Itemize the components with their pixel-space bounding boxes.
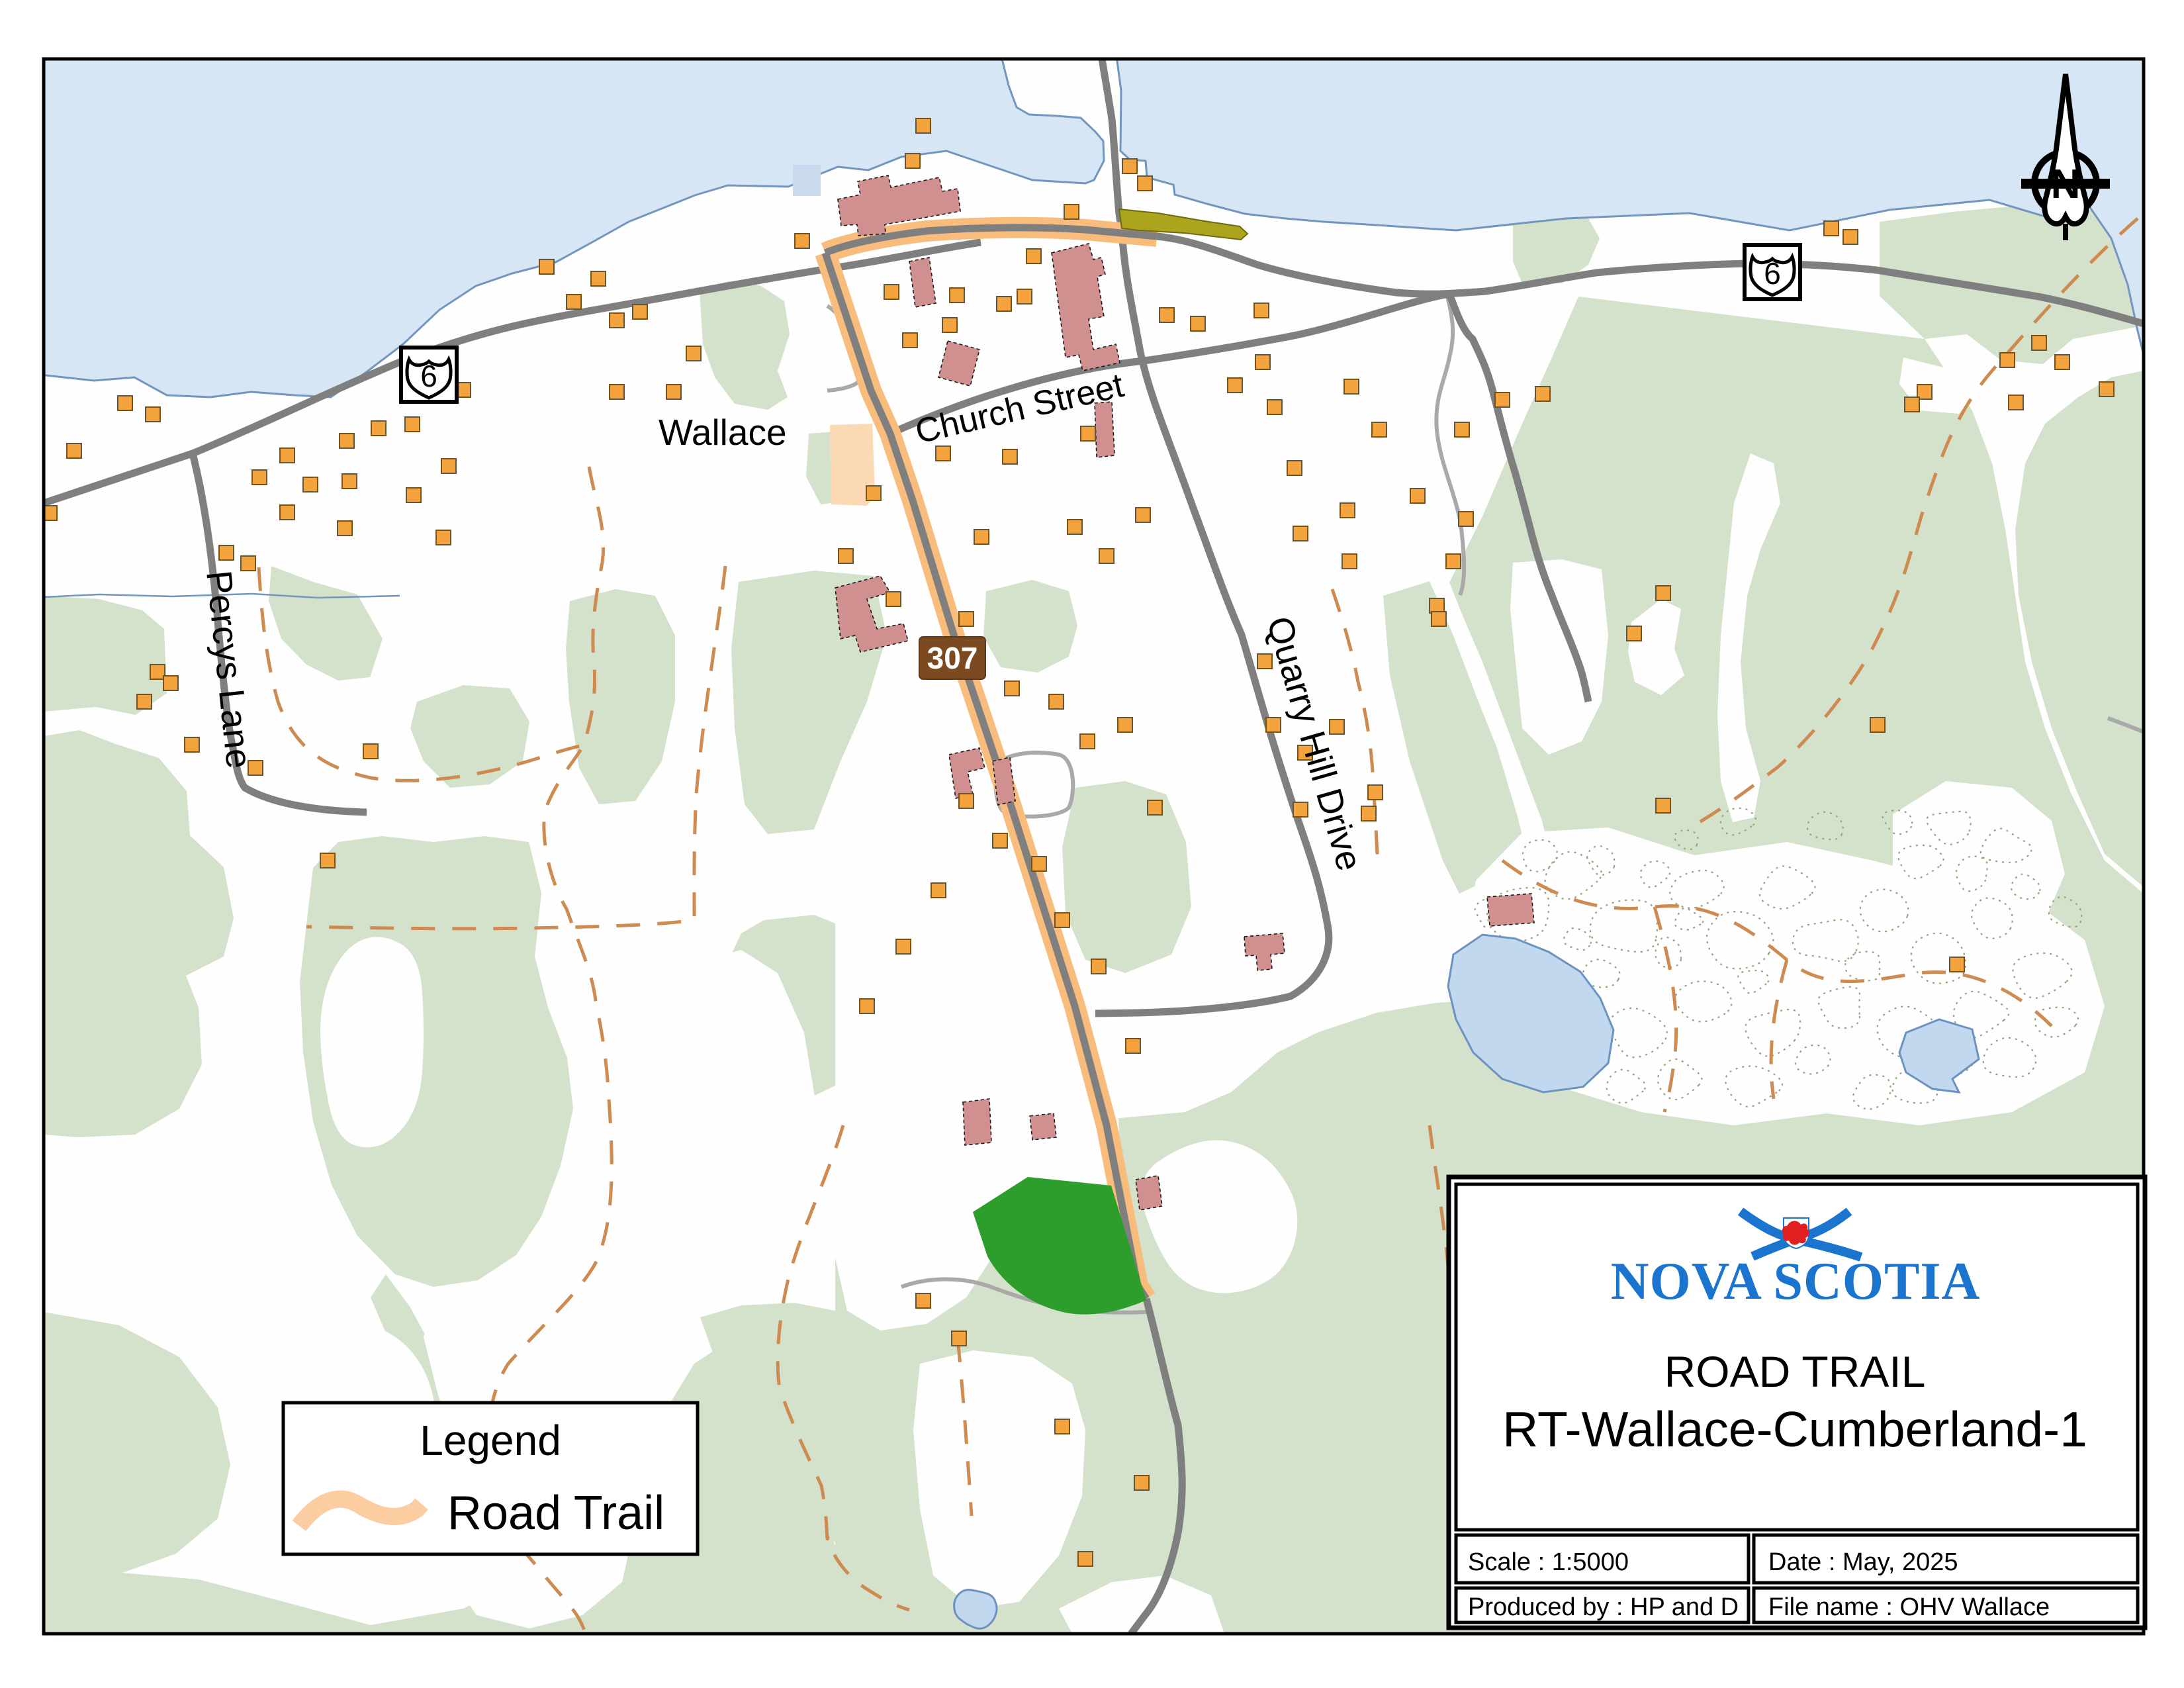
svg-text:File name : OHV Wallace: File name : OHV Wallace [1768,1593,2050,1621]
svg-text:Wallace: Wallace [659,412,787,453]
svg-text:N: N [2051,162,2081,207]
svg-text:Road Trail: Road Trail [447,1487,664,1540]
svg-text:Date : May, 2025: Date : May, 2025 [1768,1548,1958,1576]
svg-text:6: 6 [420,359,437,393]
svg-text:Produced by : HP and D: Produced by : HP and D [1468,1593,1739,1621]
svg-text:ROAD TRAIL: ROAD TRAIL [1664,1347,1926,1396]
svg-text:RT-Wallace-Cumberland-1: RT-Wallace-Cumberland-1 [1502,1401,2087,1457]
svg-text:Legend: Legend [420,1417,561,1464]
svg-text:Scale : 1:5000: Scale : 1:5000 [1468,1548,1629,1576]
svg-text:NOVA SCOTIA: NOVA SCOTIA [1611,1252,1981,1311]
svg-text:6: 6 [1764,256,1781,291]
svg-text:307: 307 [927,641,978,675]
